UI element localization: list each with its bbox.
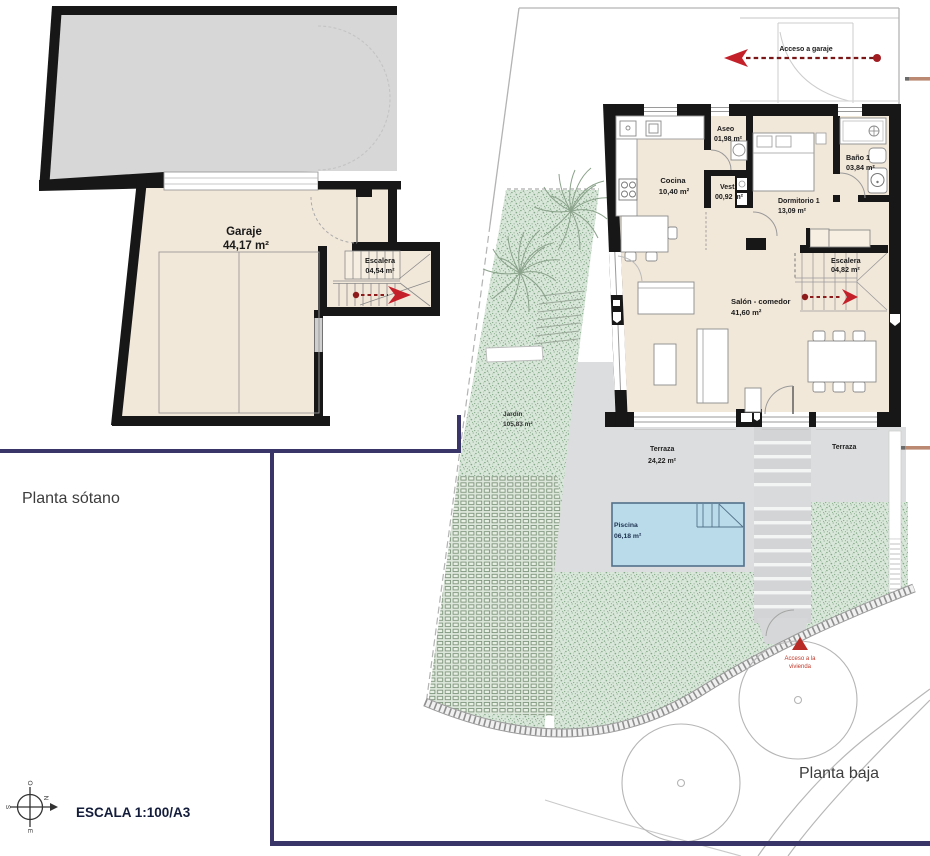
svg-text:Acceso a la: Acceso a la [784,656,816,662]
svg-text:Planta sótano: Planta sótano [22,490,120,507]
svg-text:24,22 m²: 24,22 m² [648,458,677,465]
svg-text:41,60 m²: 41,60 m² [731,308,762,317]
svg-text:Aseo: Aseo [717,126,734,133]
svg-text:06,18 m²: 06,18 m² [614,533,642,540]
svg-text:Baño 1: Baño 1 [846,153,870,162]
svg-text:03,84 m²: 03,84 m² [846,163,875,172]
svg-text:13,09 m²: 13,09 m² [778,208,807,215]
svg-text:Jardín: Jardín [503,411,523,418]
svg-text:44,17 m²: 44,17 m² [223,240,269,252]
svg-text:O: O [26,780,33,785]
svg-text:Cocina: Cocina [660,176,686,185]
svg-text:ESCALA 1:100/A3: ESCALA 1:100/A3 [76,805,191,820]
svg-text:Planta baja: Planta baja [799,765,879,782]
svg-text:Escalera: Escalera [365,256,396,265]
svg-text:Acceso a garaje: Acceso a garaje [779,46,832,53]
svg-text:Dormitorio 1: Dormitorio 1 [778,198,820,205]
svg-text:Vest.: Vest. [720,184,736,191]
svg-text:105,83 m²: 105,83 m² [503,421,533,428]
svg-text:Escalera: Escalera [831,256,862,265]
svg-text:Piscina: Piscina [614,522,638,529]
svg-text:04,82 m²: 04,82 m² [831,265,860,274]
svg-text:Salón - comedor: Salón - comedor [731,297,791,306]
svg-text:Terraza: Terraza [650,446,674,453]
svg-text:04,54 m²: 04,54 m² [365,266,395,275]
svg-text:vivienda: vivienda [789,664,812,670]
svg-text:E: E [26,829,33,834]
svg-text:N: N [42,796,49,801]
svg-text:10,40 m²: 10,40 m² [659,187,690,196]
svg-text:Garaje: Garaje [226,226,262,238]
svg-text:01,98 m²: 01,98 m² [714,136,743,143]
svg-text:00,92 m²: 00,92 m² [715,194,744,201]
svg-text:S: S [4,805,11,810]
svg-text:Terraza: Terraza [832,444,856,451]
